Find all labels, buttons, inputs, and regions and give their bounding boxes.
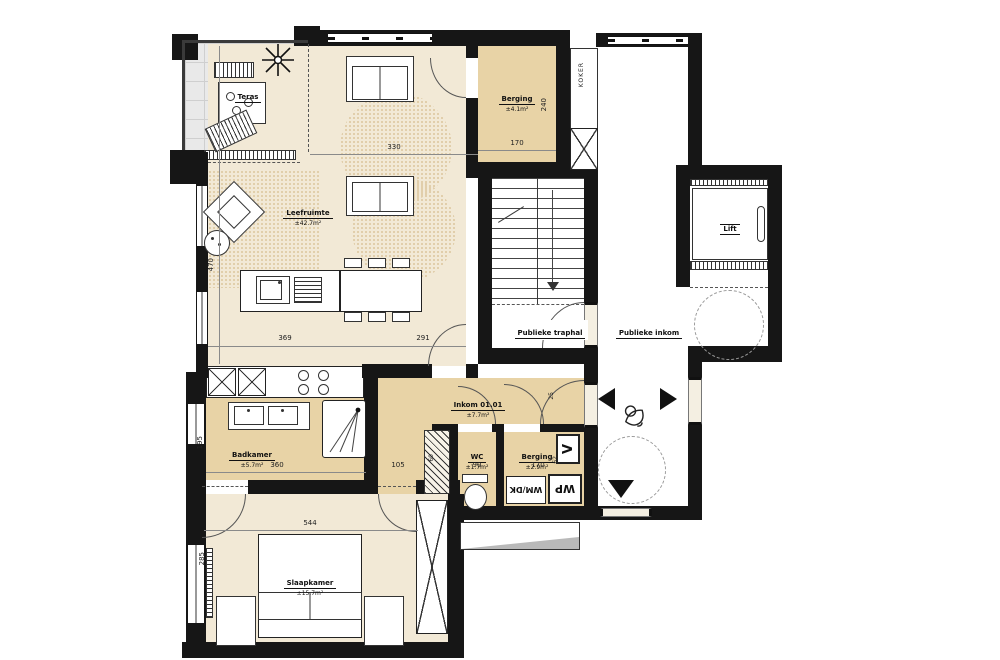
plant-icon	[258, 42, 298, 78]
traphal-name: Publieke traphal	[515, 329, 586, 339]
dining-chair-2	[368, 258, 386, 268]
room-label-leefruimte: Leefruimte ±42.7m²	[274, 200, 342, 228]
dimline-living-bottom	[208, 346, 466, 347]
terrace-rail-left	[182, 40, 185, 155]
vanity-faucet-1	[247, 409, 250, 412]
dimline-living-left	[219, 46, 220, 364]
room-label-publieke-inkom: Publieke inkom	[610, 320, 688, 340]
vanity-faucet-2	[281, 409, 284, 412]
room-label-inkom: Inkom 01.01 ±7.7m²	[444, 392, 512, 420]
arrow-left-icon	[598, 388, 615, 410]
arrow-right-icon	[660, 388, 677, 410]
wall-wc-storage-divider	[496, 432, 504, 506]
staircase-arrow-head	[547, 282, 559, 291]
dim-240: 240	[540, 98, 548, 111]
dim-470: 470	[207, 258, 215, 271]
heat-pump-label: WP	[548, 474, 582, 504]
wall-storage-right	[556, 44, 570, 162]
dining-chair-6	[392, 312, 410, 322]
door-opening-bedroom-left	[202, 486, 248, 487]
radiator-bedroom	[206, 548, 213, 618]
door-jamb-neighbor	[688, 377, 702, 425]
wall-bathroom-right	[364, 376, 378, 480]
wall-lift-top	[676, 165, 782, 179]
lift-name: Lift	[720, 224, 739, 235]
turning-circle-lift	[694, 290, 764, 360]
dim-105: 105	[382, 461, 414, 469]
dim-291: 291	[406, 334, 440, 342]
dining-chair-5	[368, 312, 386, 322]
terrace-edge-dashed	[208, 162, 300, 163]
dimline-badkamer	[206, 472, 366, 473]
dining-chair-4	[344, 312, 362, 322]
dining-chair-3	[392, 258, 410, 268]
island-drainer	[294, 277, 322, 303]
badkamer-name: Badkamer	[229, 451, 275, 461]
shower-drain-lines	[324, 402, 364, 456]
inkom-area: ±7.7m²	[444, 412, 512, 420]
duct-shaft-x	[570, 128, 598, 170]
publieke-inkom-name: Publieke inkom	[616, 329, 682, 339]
washer-dryer-label: WM/DK	[506, 476, 546, 504]
cooktop-burner-1	[298, 370, 309, 381]
nightstand-left	[216, 596, 256, 646]
dim-544: 544	[292, 519, 328, 527]
lift-label: Lift	[700, 216, 760, 236]
dim-170a: 170	[500, 139, 534, 147]
wall-wcrow-left	[450, 428, 458, 506]
dimline-living-top	[310, 154, 478, 155]
door-corridor-bottom	[600, 508, 652, 517]
wardrobe	[416, 500, 448, 634]
staircase-divider	[537, 178, 538, 304]
slaapkamer-area: ±15.7m²	[262, 590, 358, 598]
wall-stair-left	[478, 178, 492, 364]
dining-table	[340, 270, 422, 312]
dim-90: 90	[464, 461, 490, 469]
window-living-top	[328, 33, 432, 43]
dining-chair-1	[344, 258, 362, 268]
dim-285: 285	[198, 552, 206, 565]
lift-doors	[690, 261, 768, 270]
dim-330: 330	[376, 143, 412, 151]
staircase-arrow-line	[552, 190, 553, 282]
duct-shaft-label: KOKER	[578, 62, 585, 87]
leefruimte-name: Leefruimte	[283, 209, 332, 219]
cooktop-burner-2	[318, 370, 329, 381]
island-faucet	[278, 281, 281, 284]
floor-plan: KOKER Lift	[0, 0, 1000, 660]
wall-lift-right	[768, 165, 782, 287]
wall-corridor-left-2	[584, 348, 598, 382]
dim-62: 62	[552, 456, 559, 464]
wall-stairhall-bottom	[478, 348, 584, 364]
lift-threshold-dashed	[690, 287, 768, 288]
dim-25: 25	[548, 392, 555, 400]
dim-369: 369	[268, 334, 302, 342]
lift-handle	[757, 206, 765, 242]
window-corridor-top	[608, 36, 690, 45]
hall-closet	[424, 430, 450, 494]
wall-hall-wcrow-b	[492, 424, 504, 432]
berging-top-area: ±4.1m²	[486, 106, 548, 114]
exterior-canopy	[460, 522, 580, 550]
inkom-name: Inkom 01.01	[451, 401, 506, 411]
wall-living-storage-b	[466, 98, 478, 162]
cooktop-burner-4	[318, 384, 329, 395]
terrace-bench	[214, 62, 254, 78]
side-table-item-1	[211, 237, 214, 240]
terrace-sliding-door-line	[308, 44, 309, 152]
wall-corridor-right-top	[688, 33, 702, 167]
dim-195: 195	[196, 436, 204, 449]
room-label-slaapkamer: Slaapkamer ±15.7m²	[262, 570, 358, 598]
dim-360: 360	[260, 461, 294, 469]
kitchen-tall-cabinet-1	[208, 368, 236, 396]
room-label-traphal: Publieke traphal	[512, 320, 588, 340]
room-label-berging-top: Berging ±4.1m²	[486, 86, 548, 114]
dim-170b: 170	[522, 461, 554, 469]
turning-circle-corridor	[598, 436, 666, 504]
room-label-teras: Teras	[224, 84, 272, 104]
wall-lift-left	[676, 165, 690, 287]
canopy-shade	[461, 537, 579, 549]
dim-60: 60	[428, 454, 435, 462]
teras-name: Teras	[235, 93, 262, 103]
sofa-bottom-seat	[352, 182, 408, 212]
wall-corridor-left-1	[584, 178, 598, 302]
person-icon	[612, 394, 657, 439]
window-living-left-2	[197, 292, 207, 344]
dimline-berging-top	[478, 150, 556, 151]
door-opening-bedroom-right	[378, 486, 416, 487]
sofa-top-seat	[352, 66, 408, 100]
wall-bath-bedroom-a	[186, 480, 202, 494]
wall-corridor-right-low-1	[688, 346, 702, 377]
kitchen-tall-cabinet-2	[238, 368, 266, 396]
toilet-tank	[462, 474, 488, 483]
staircase-treads	[492, 178, 584, 304]
wall-hall-top-b	[466, 364, 478, 378]
wall-living-storage-a	[466, 44, 478, 58]
lift-back-wall	[690, 179, 768, 186]
slaapkamer-name: Slaapkamer	[284, 579, 337, 589]
side-table	[204, 230, 230, 256]
dimline-bedroom	[204, 530, 418, 531]
cooktop-burner-3	[298, 384, 309, 395]
door-jamb-apartment-entry	[584, 382, 598, 428]
nightstand-right	[364, 596, 404, 646]
toilet-bowl	[464, 484, 487, 510]
wall-hall-wcrow-c	[540, 424, 584, 432]
kitchen-island	[240, 270, 340, 312]
leefruimte-area: ±42.7m²	[274, 220, 342, 228]
wall-terrace-corner-tl	[172, 34, 198, 60]
wall-bath-bedroom-b	[248, 480, 378, 494]
berging-top-name: Berging	[499, 95, 536, 105]
